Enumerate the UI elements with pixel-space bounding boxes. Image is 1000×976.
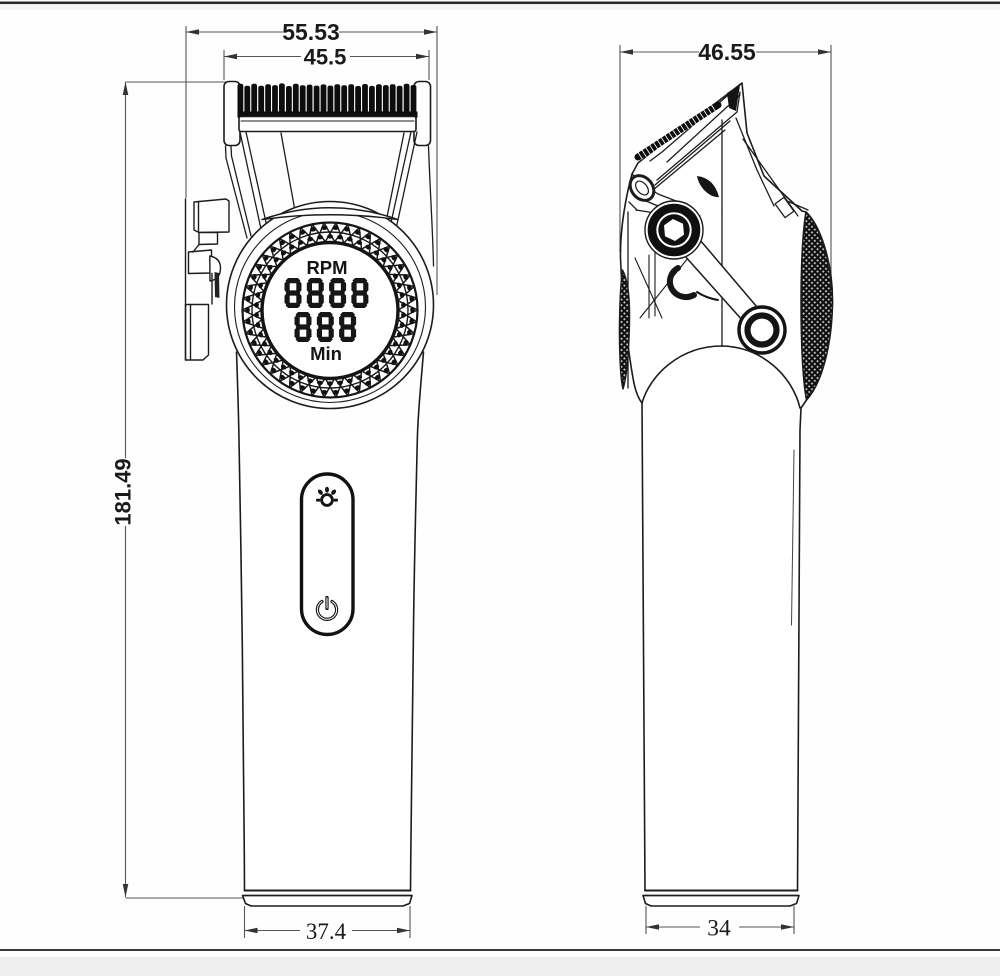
svg-text:Min: Min	[310, 343, 342, 364]
svg-text:45.5: 45.5	[304, 45, 347, 70]
svg-text:37.4: 37.4	[306, 919, 347, 944]
svg-text:181.49: 181.49	[111, 458, 136, 525]
svg-text:34: 34	[707, 916, 731, 942]
svg-text:46.55: 46.55	[698, 39, 756, 65]
svg-text:55.53: 55.53	[282, 19, 340, 45]
svg-text:RPM: RPM	[306, 257, 347, 278]
